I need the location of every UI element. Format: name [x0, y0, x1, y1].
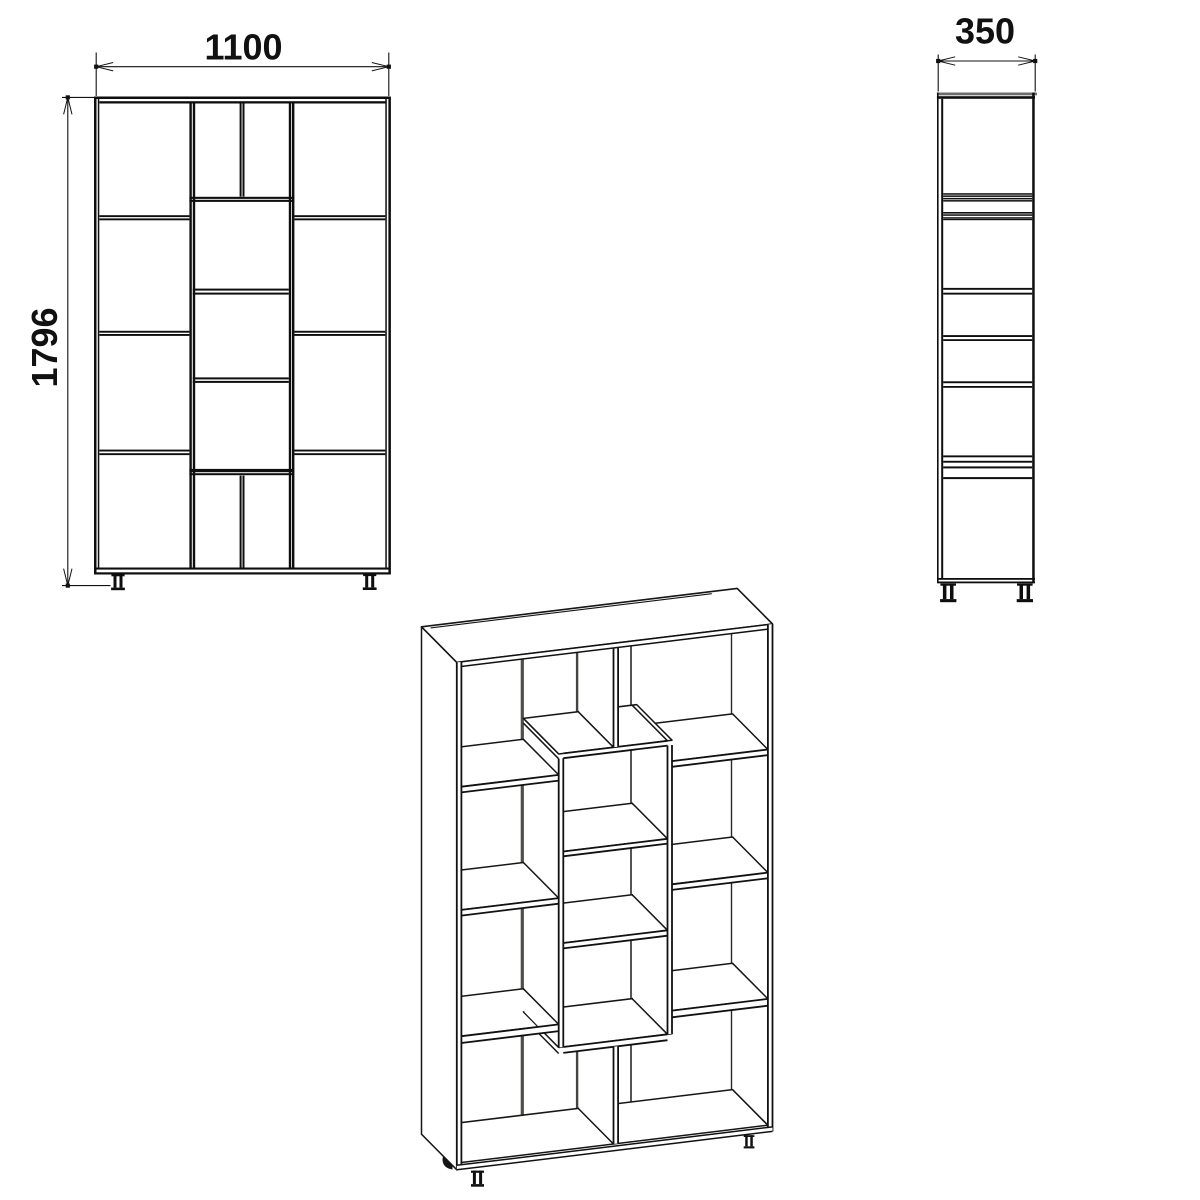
- svg-text:1796: 1796: [24, 307, 65, 387]
- svg-text:350: 350: [955, 11, 1015, 52]
- svg-text:1100: 1100: [204, 27, 282, 68]
